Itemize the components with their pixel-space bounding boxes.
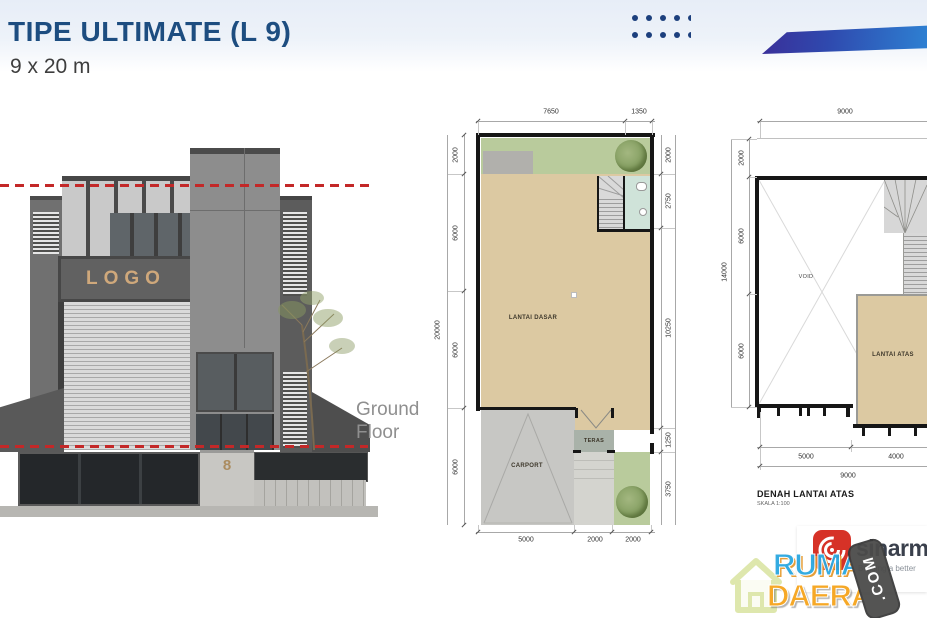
ground-floor-label: Ground Floor bbox=[356, 399, 428, 445]
facade-tree bbox=[262, 280, 362, 452]
dim-label: 1250 bbox=[666, 432, 673, 448]
ground-curb bbox=[0, 506, 378, 517]
dim-label: 6000 bbox=[453, 225, 460, 241]
dim-line bbox=[757, 447, 927, 448]
wall-segment bbox=[607, 450, 615, 453]
watermark-com-text: .COM bbox=[859, 554, 889, 604]
up-stairs-run bbox=[903, 233, 927, 295]
gp-tree-top bbox=[615, 140, 647, 172]
glass-dark-panes bbox=[110, 213, 190, 256]
dim-ext-line bbox=[654, 428, 675, 429]
half-dot-icon bbox=[688, 32, 691, 38]
dim-label: 9000 bbox=[837, 109, 853, 116]
tower-seam bbox=[190, 210, 280, 211]
wall-segment bbox=[755, 176, 927, 180]
dim-ext-line bbox=[652, 121, 653, 135]
dim-ext-line bbox=[731, 139, 757, 140]
tower-seam bbox=[244, 148, 245, 348]
dim-label: 2000 bbox=[625, 537, 641, 544]
dim-label: 7650 bbox=[543, 109, 559, 116]
up-stairs-fan bbox=[884, 179, 927, 233]
door-swing-lines bbox=[578, 408, 614, 430]
wall-segment bbox=[573, 450, 581, 453]
fence-post bbox=[777, 408, 780, 416]
dot-icon bbox=[632, 32, 638, 38]
dim-label: 2750 bbox=[666, 193, 673, 209]
page-title: TIPE ULTIMATE (L 9) bbox=[8, 16, 291, 48]
page-subtitle: 9 x 20 m bbox=[10, 55, 91, 79]
dim-label: 4000 bbox=[888, 454, 904, 461]
up-caption-title: DENAH LANTAI ATAS bbox=[757, 489, 854, 499]
wall-segment bbox=[479, 407, 576, 410]
watermark: RUMAH DAERAH .COM bbox=[720, 535, 927, 618]
level-line-ground bbox=[0, 445, 368, 448]
dot-icon bbox=[660, 32, 666, 38]
dim-line bbox=[675, 135, 676, 525]
wall-segment bbox=[650, 133, 654, 454]
dim-label: 14000 bbox=[722, 262, 729, 281]
logo-text: LOGO bbox=[86, 268, 166, 290]
gp-walkway-steps bbox=[574, 452, 614, 480]
dots-decoration bbox=[632, 15, 691, 38]
wall-segment bbox=[476, 133, 480, 411]
wall-segment bbox=[597, 176, 599, 229]
dim-line bbox=[476, 532, 655, 533]
dim-label: 5000 bbox=[798, 454, 814, 461]
dim-line bbox=[464, 135, 465, 525]
gp-teras-label: TERAS bbox=[584, 438, 604, 444]
dim-line bbox=[447, 135, 448, 525]
gp-room-label: LANTAI DASAR bbox=[509, 315, 557, 321]
logo-band: LOGO bbox=[58, 256, 194, 302]
dim-label: 2000 bbox=[587, 537, 603, 544]
dim-label: 1350 bbox=[631, 109, 647, 116]
fence-post bbox=[846, 404, 850, 417]
door-gap bbox=[650, 434, 654, 443]
toilet-fixture bbox=[636, 182, 647, 191]
wall-segment bbox=[755, 176, 759, 408]
dim-line bbox=[661, 135, 662, 525]
dim-ext-line bbox=[731, 407, 757, 408]
dot-icon bbox=[646, 32, 652, 38]
dim-label: 10250 bbox=[666, 318, 673, 337]
roller-shutter bbox=[64, 302, 190, 450]
dim-line bbox=[757, 466, 927, 467]
fence-post bbox=[799, 408, 802, 416]
dim-ext-line bbox=[625, 121, 626, 135]
dim-label: 3750 bbox=[666, 481, 673, 497]
dim-label: 6000 bbox=[453, 459, 460, 475]
dim-ext-line bbox=[749, 177, 757, 178]
dim-label: 20000 bbox=[435, 320, 442, 339]
wall-segment bbox=[476, 133, 655, 137]
fence-post bbox=[862, 428, 865, 436]
dim-ext-line bbox=[760, 121, 761, 138]
wall-segment bbox=[611, 408, 614, 418]
tree-icon bbox=[262, 280, 362, 452]
gp-stairs bbox=[598, 176, 624, 229]
dot-icon bbox=[674, 15, 680, 21]
stair-fan-lines bbox=[884, 179, 927, 233]
dim-label: 6000 bbox=[739, 343, 746, 359]
up-floor-tan bbox=[856, 294, 927, 426]
half-dot-icon bbox=[688, 15, 691, 21]
dot-icon bbox=[674, 32, 680, 38]
level-line-upper bbox=[0, 184, 372, 187]
gp-bathroom bbox=[624, 176, 650, 229]
dim-line bbox=[749, 139, 750, 408]
dim-ext-line bbox=[749, 294, 757, 295]
gp-column-marker bbox=[571, 292, 577, 298]
dim-label: 2000 bbox=[453, 147, 460, 163]
dot-icon bbox=[646, 15, 652, 21]
gp-garden-pad bbox=[483, 151, 533, 174]
dim-line bbox=[476, 121, 655, 122]
dim-label: 6000 bbox=[739, 228, 746, 244]
dim-label: 6000 bbox=[453, 342, 460, 358]
dim-ext-line bbox=[654, 228, 675, 229]
dim-ext-line bbox=[760, 412, 761, 470]
fence-post bbox=[888, 428, 891, 436]
slide: TIPE ULTIMATE (L 9) 9 x 20 m LOGO bbox=[0, 0, 927, 618]
wall-segment bbox=[757, 404, 853, 408]
up-room-label: LANTAI ATAS bbox=[872, 352, 914, 358]
dim-label: 5000 bbox=[518, 537, 534, 544]
dim-label: 2000 bbox=[666, 147, 673, 163]
gp-door-swing bbox=[578, 408, 614, 430]
fence-concrete-right bbox=[254, 480, 366, 508]
fence-post bbox=[914, 428, 917, 436]
gp-carport-label: CARPORT bbox=[511, 463, 543, 469]
dim-tick bbox=[462, 523, 467, 528]
house-number: 8 bbox=[223, 457, 231, 474]
wall-segment bbox=[597, 229, 654, 232]
fence-post bbox=[823, 408, 826, 416]
dim-line bbox=[757, 121, 927, 122]
louver-panel bbox=[33, 212, 59, 254]
dim-ext-line bbox=[478, 121, 479, 135]
dot-icon bbox=[660, 15, 666, 21]
up-boundary-line bbox=[757, 138, 927, 139]
dim-ext-line bbox=[654, 452, 675, 453]
wall-segment bbox=[623, 176, 625, 229]
banner-ribbon bbox=[762, 25, 927, 54]
dot-icon bbox=[632, 15, 638, 21]
fence-post bbox=[807, 408, 810, 416]
up-void-label: VOID bbox=[799, 274, 814, 280]
dim-line bbox=[731, 139, 732, 408]
fence-dark-left bbox=[18, 452, 200, 506]
up-caption-scale: SKALA 1:100 bbox=[757, 501, 790, 507]
dim-label: 9000 bbox=[840, 473, 856, 480]
dim-label: 2000 bbox=[739, 150, 746, 166]
sink-fixture bbox=[639, 208, 647, 216]
gp-tree-bottom bbox=[616, 486, 648, 518]
gate-pillar: 8 bbox=[200, 450, 254, 508]
fence-dark-right bbox=[254, 452, 368, 482]
dim-ext-line bbox=[654, 174, 675, 175]
stair-winder-lines bbox=[598, 176, 624, 229]
side-wall-left bbox=[0, 388, 64, 452]
wall-segment bbox=[575, 408, 578, 418]
